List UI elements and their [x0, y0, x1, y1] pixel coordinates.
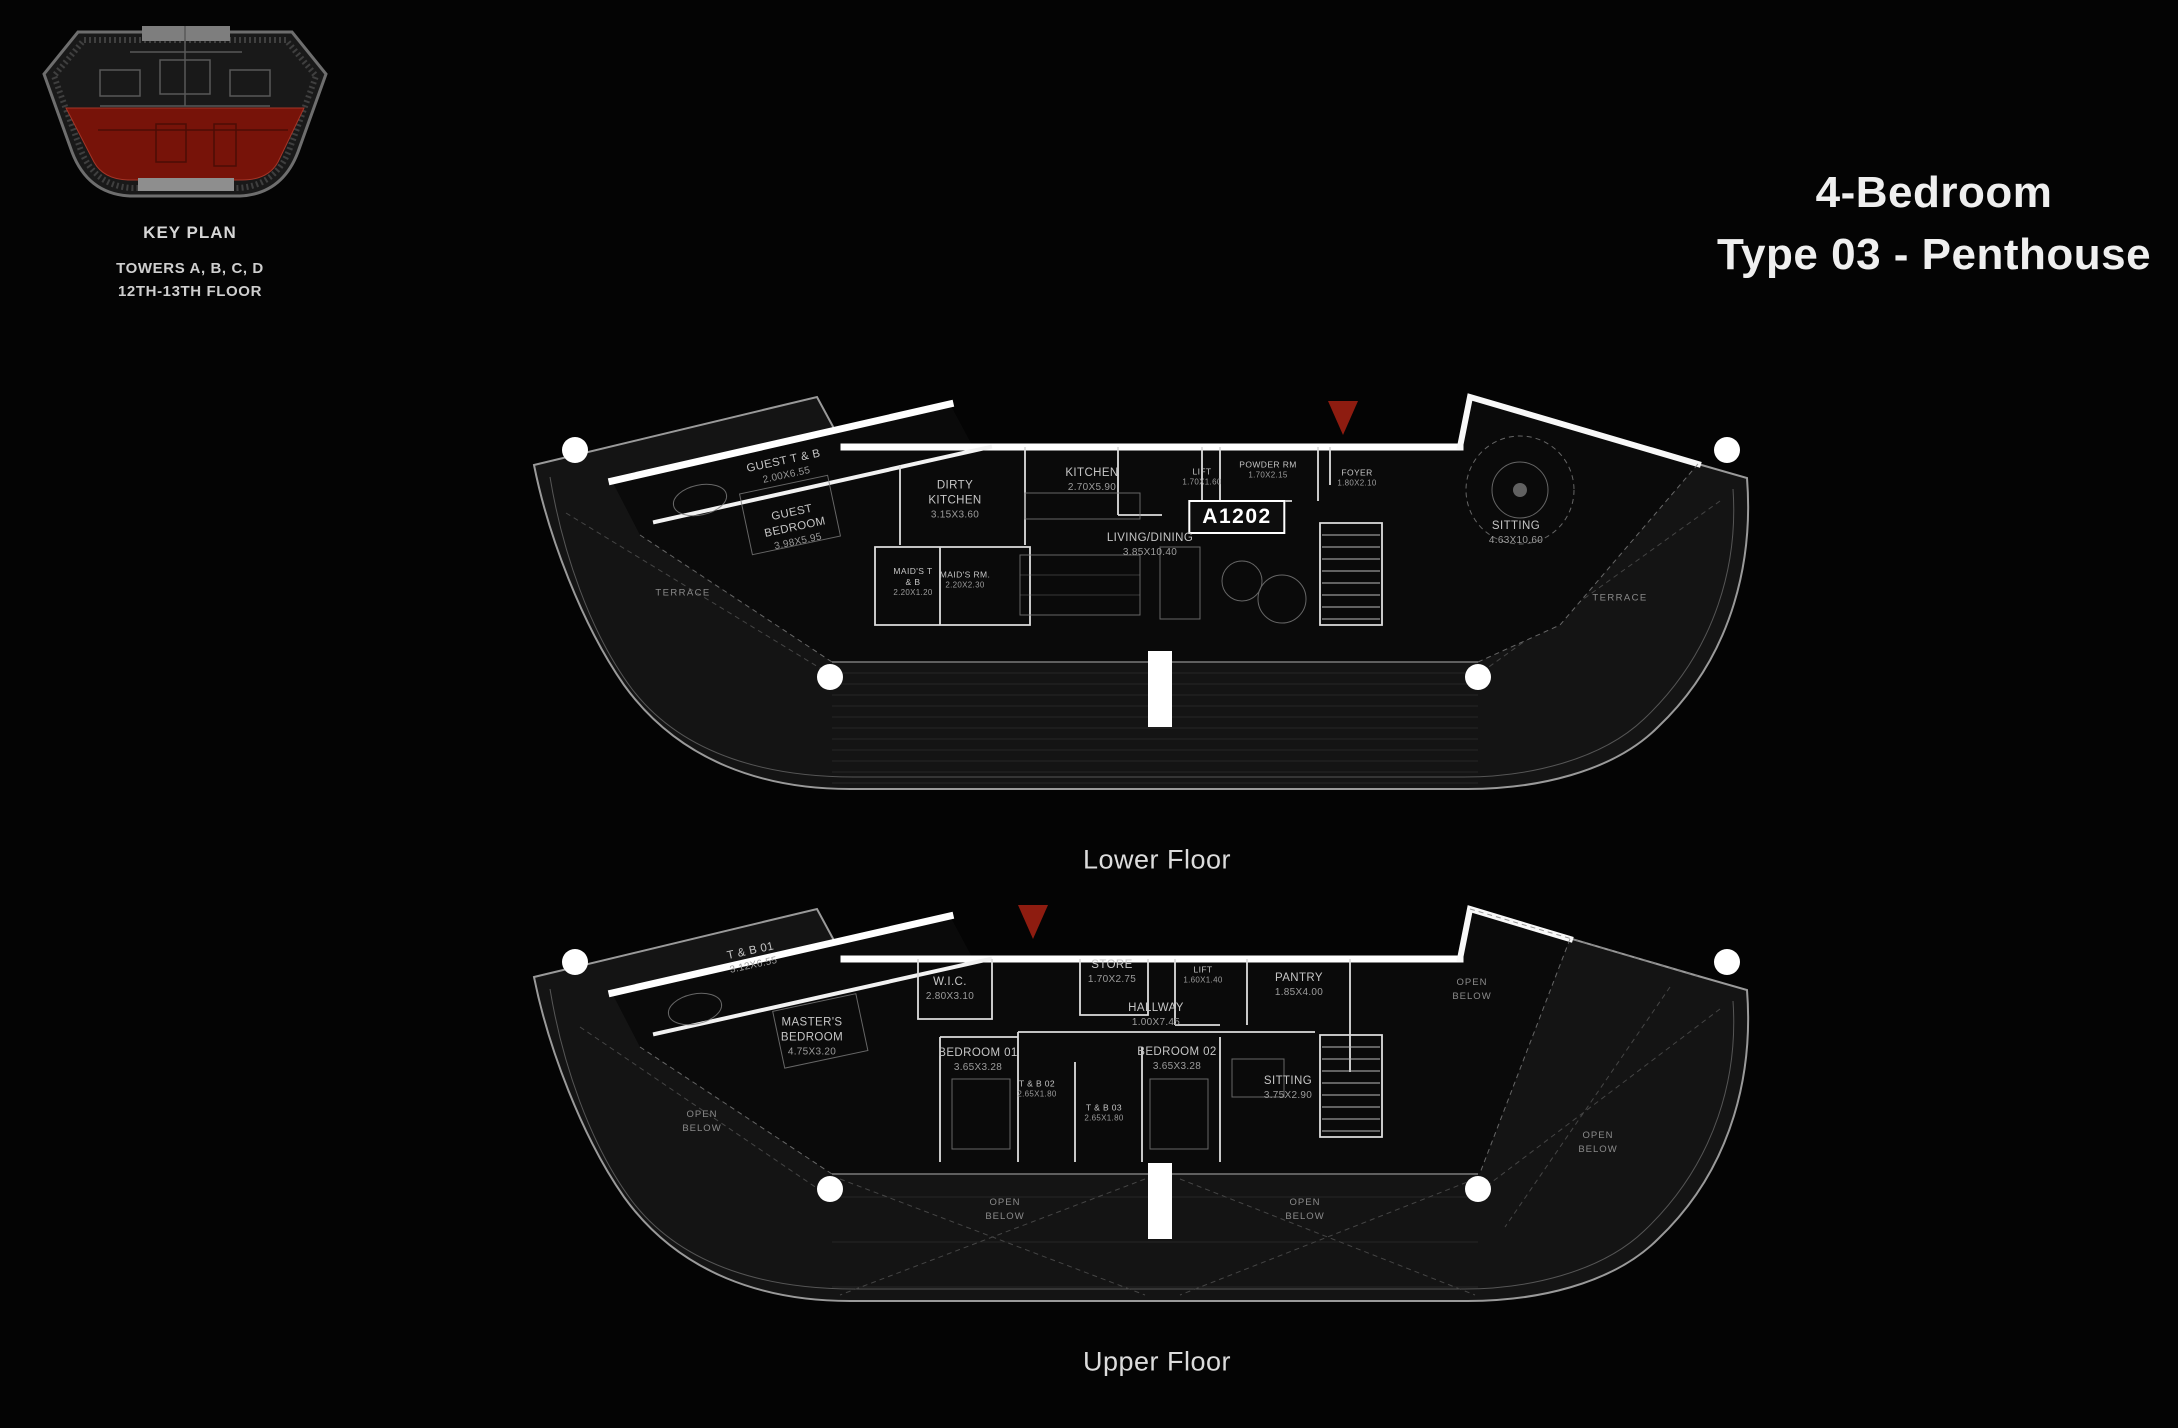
upper-center-pillar	[1148, 1163, 1172, 1239]
title-bedroom-count: 4-Bedroom	[1704, 168, 2164, 218]
room-label-sitting-lower: SITTING 4.63X10.60	[1489, 519, 1543, 547]
room-label-lift-lower: LIFT 1.70X1.60	[1182, 466, 1221, 487]
zone-label-open-below-bottom-left: OPEN BELOW	[976, 1196, 1034, 1225]
room-label-tb03: T & B 03 2.65X1.80	[1081, 1102, 1127, 1123]
key-plan-towers: TOWERS A, B, C, D	[38, 257, 342, 280]
room-label-living-dining: LIVING/DINING 3.85X10.40	[1107, 531, 1193, 559]
key-plan-floors: 12TH-13TH FLOOR	[38, 280, 342, 303]
room-label-masters-bedroom: MASTER'S BEDROOM 4.75X3.20	[766, 1016, 858, 1059]
lower-floor-caption: Lower Floor	[1083, 845, 1231, 876]
plan-title: 4-Bedroom Type 03 - Penthouse	[1704, 168, 2164, 280]
zone-label-terrace-left: TERRACE	[655, 588, 710, 599]
room-label-powder-rm: POWDER RM 1.70X2.15	[1239, 459, 1296, 480]
room-label-store: STORE 1.70X2.75	[1088, 958, 1136, 986]
room-label-hallway: HALLWAY 1.00X7.45	[1128, 1001, 1184, 1029]
floor-plan-page: KEY PLAN TOWERS A, B, C, D 12TH-13TH FLO…	[0, 0, 2178, 1428]
title-unit-type: Type 03 - Penthouse	[1704, 230, 2164, 280]
room-label-bedroom01: BEDROOM 01 3.65X3.28	[938, 1046, 1017, 1074]
zone-label-open-below-right: OPEN BELOW	[1569, 1129, 1627, 1158]
unit-number-badge: A1202	[1188, 500, 1285, 534]
entry-marker-icon	[1018, 905, 1048, 939]
zone-label-open-below-bottom-right: OPEN BELOW	[1276, 1196, 1334, 1225]
room-label-pantry: PANTRY 1.85X4.00	[1275, 971, 1323, 999]
lower-floor-drawing	[520, 385, 1820, 865]
room-label-foyer: FOYER 1.80X2.10	[1337, 467, 1376, 488]
room-label-maids-tb: MAID'S T & B 2.20X1.20	[892, 566, 934, 598]
zone-label-terrace-right: TERRACE	[1592, 593, 1647, 604]
room-label-tb02: T & B 02 2.65X1.80	[1014, 1078, 1060, 1099]
upper-floor-caption: Upper Floor	[1083, 1347, 1231, 1378]
room-label-kitchen: KITCHEN 2.70X5.90	[1065, 466, 1118, 494]
key-plan-caption: KEY PLAN	[38, 223, 342, 243]
room-label-maids-rm: MAID'S RM. 2.20X2.30	[940, 569, 990, 590]
room-label-lift-upper: LIFT 1.60X1.40	[1183, 964, 1222, 985]
zone-label-open-below-top-right: OPEN BELOW	[1443, 976, 1501, 1005]
zone-label-open-below-left: OPEN BELOW	[673, 1108, 731, 1137]
key-plan: KEY PLAN TOWERS A, B, C, D 12TH-13TH FLO…	[38, 12, 342, 304]
room-label-wic: W.I.C. 2.80X3.10	[926, 975, 974, 1003]
lower-center-pillar	[1148, 651, 1172, 727]
room-label-bedroom02: BEDROOM 02 3.65X3.28	[1137, 1045, 1216, 1073]
key-plan-highlight-unit	[66, 108, 304, 180]
room-label-dirty-kitchen: DIRTY KITCHEN 3.15X3.60	[919, 479, 991, 522]
entry-marker-icon	[1328, 401, 1358, 435]
key-plan-graphic	[38, 12, 342, 210]
room-label-sitting-upper: SITTING 3.75X2.90	[1264, 1074, 1312, 1102]
